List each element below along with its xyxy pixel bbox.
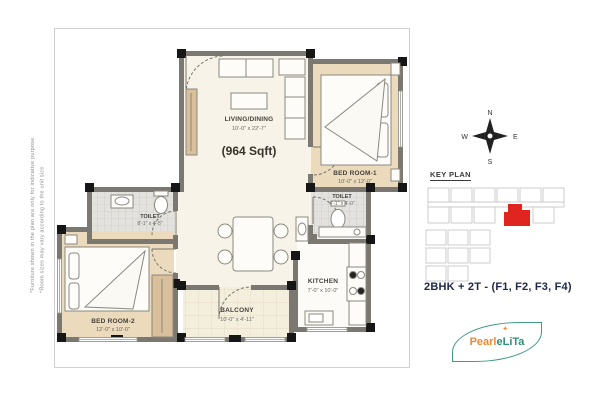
disclaimer-line-1: *Furniture shown in the plan are only fo… <box>29 78 38 293</box>
bed1-side-table <box>391 63 400 75</box>
balcony-dims: 10'-0" x 4'-11" <box>220 317 253 323</box>
sofa-right <box>285 77 305 139</box>
dining-chair <box>274 250 288 264</box>
compass-south: S <box>488 159 493 166</box>
floor-plan-sheet: LIVING/DINING 10'-0" x 22'-7" (964 Sqft)… <box>54 28 410 368</box>
logo-word-pearl: Pearl <box>470 336 497 348</box>
wc2-tank <box>154 191 168 196</box>
key-plan-map <box>424 184 570 288</box>
compass-north: N <box>487 110 492 117</box>
bed2-pillow <box>69 253 79 279</box>
unit-type-title: 2BHK + 2T - (F1, F2, F3, F4) <box>424 281 600 293</box>
bed1-side-table <box>391 169 400 181</box>
disclaimer-text: *Furniture shown in the plan are only fo… <box>29 78 45 293</box>
coffee-table <box>231 93 267 109</box>
dining-chair <box>218 250 232 264</box>
kitchen-dims: 7'-0" x 10'-0" <box>308 288 339 294</box>
balcony-label: BALCONY <box>220 307 254 314</box>
living-label: LIVING/DINING <box>225 116 274 123</box>
bed2-side-table <box>65 235 77 244</box>
floor-plan-drawing: LIVING/DINING 10'-0" x 22'-7" (964 Sqft)… <box>55 29 409 367</box>
bedroom1-dims: 10'-0" x 12'-0" <box>338 179 372 185</box>
kitchen-label: KITCHEN <box>308 278 338 285</box>
dining-table <box>233 217 273 271</box>
dining-chair <box>274 224 288 238</box>
bed2-pillow <box>69 283 79 309</box>
corner-table <box>279 59 305 75</box>
wc2 <box>155 197 168 214</box>
disclaimer-line-2: *Room sizes may vary according to the un… <box>38 78 47 293</box>
compass-rose: N S E W <box>460 104 524 168</box>
living-dims: 10'-0" x 22'-7" <box>232 126 266 132</box>
corridor-floor <box>176 189 190 287</box>
wc1 <box>331 210 345 229</box>
bedroom2-dims: 12'-0" x 10'-0" <box>96 327 130 333</box>
compass-west: W <box>461 134 468 141</box>
toilet1-dims: 4'-1" x 4'-0" <box>329 201 354 207</box>
toilet2-dims: 8'-1" x 4'-5" <box>137 221 162 227</box>
compass-east: E <box>513 134 518 141</box>
toilet2-label: TOILET <box>140 214 160 220</box>
logo-word-elita: eLiTa <box>497 336 525 348</box>
key-plan-title: KEY PLAN <box>430 170 471 181</box>
dining-chair <box>218 224 232 238</box>
bedroom1-label: BED ROOM-1 <box>333 170 377 177</box>
bedroom2-label: BED ROOM-2 <box>91 318 135 325</box>
logo-sparkle-icon: ✦ <box>502 325 508 333</box>
toilet1-label: TOILET <box>332 194 352 200</box>
brand-logo: ✦ PearleLiTa <box>452 322 542 362</box>
floor-plan-page: *Furniture shown in the plan are only fo… <box>0 0 600 400</box>
area-label: (964 Sqft) <box>222 144 277 158</box>
